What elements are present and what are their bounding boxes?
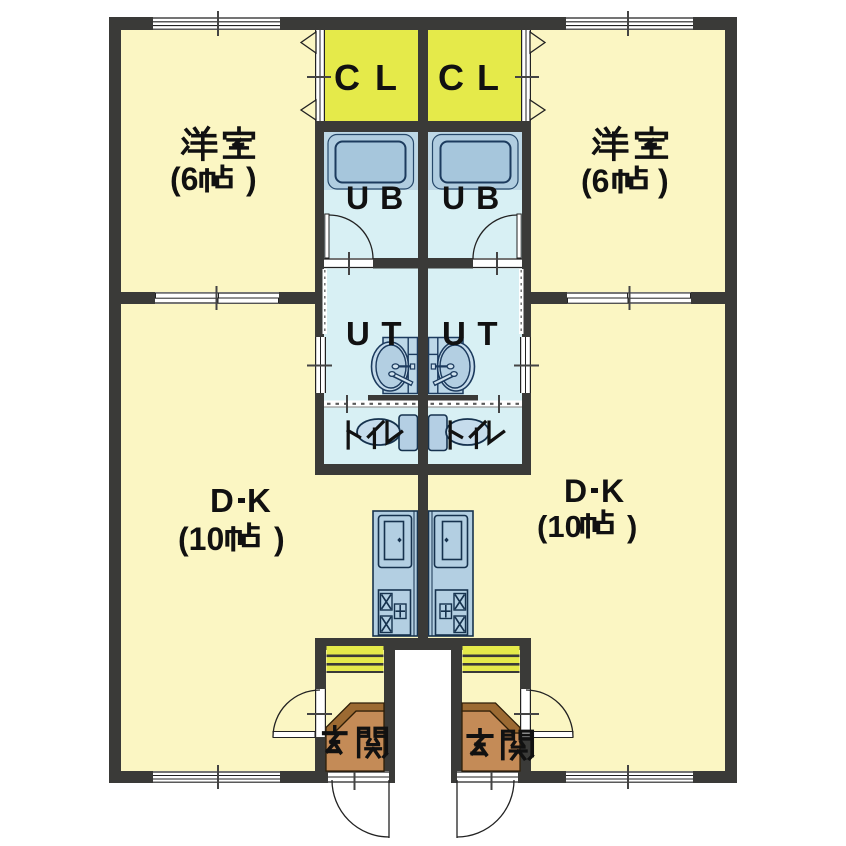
svg-text:CL: CL — [438, 57, 512, 98]
svg-text:K: K — [247, 482, 271, 519]
svg-text:(10: (10 — [537, 509, 582, 544]
svg-text:D: D — [564, 473, 587, 509]
svg-text:(6: (6 — [170, 161, 198, 197]
svg-text:D: D — [210, 482, 234, 519]
svg-text:(6: (6 — [581, 163, 609, 199]
svg-text:): ) — [246, 161, 257, 197]
svg-text:): ) — [274, 521, 285, 557]
svg-text:(10: (10 — [178, 521, 224, 557]
svg-text:UB: UB — [442, 180, 510, 216]
svg-text:): ) — [627, 509, 637, 544]
svg-text:CL: CL — [334, 57, 412, 98]
svg-text:UB: UB — [346, 180, 414, 216]
svg-text:): ) — [658, 163, 669, 199]
svg-text:UT: UT — [346, 315, 413, 352]
svg-text:UT: UT — [442, 315, 509, 352]
svg-text:K: K — [601, 473, 624, 509]
